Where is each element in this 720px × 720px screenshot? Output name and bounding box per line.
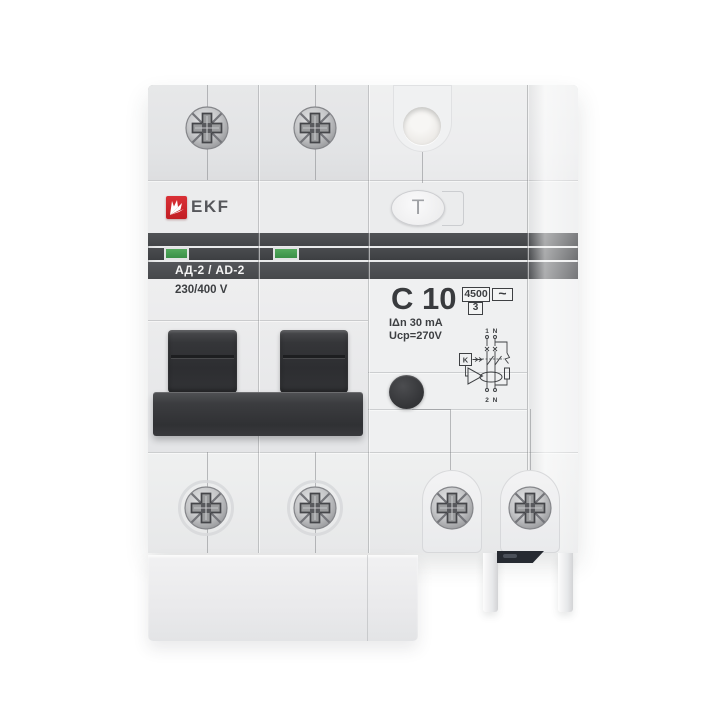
handle-groove bbox=[171, 355, 234, 358]
indicator-window-green bbox=[275, 249, 297, 258]
lower-front-face bbox=[148, 555, 418, 641]
indicator-window-green bbox=[166, 249, 187, 258]
breaking-capacity-box: 4500 bbox=[462, 287, 490, 302]
terminal-screw-icon bbox=[291, 484, 339, 532]
current-rating: C 10 bbox=[391, 281, 456, 317]
lower-face-seam bbox=[367, 555, 368, 641]
t-button-recess bbox=[442, 191, 464, 226]
dark-band-upper bbox=[148, 233, 578, 246]
toggle-handle-left bbox=[168, 330, 237, 393]
energy-class-box: 3 bbox=[468, 302, 483, 315]
trip-voltage-rating: Ucp=270V bbox=[389, 330, 442, 342]
seam-top bbox=[148, 180, 578, 181]
test-button-label: T bbox=[412, 196, 425, 219]
residual-current-rating: IΔn 30 mA bbox=[389, 317, 443, 329]
series-label: АД-2 / AD-2 bbox=[175, 263, 245, 277]
handle-groove bbox=[283, 355, 345, 358]
diagram-terminal-1: 1 bbox=[485, 328, 489, 335]
wire-slot-line bbox=[412, 409, 450, 410]
terminal-screw-icon bbox=[506, 484, 554, 532]
toggle-handle-right bbox=[280, 330, 348, 393]
terminal-screw-icon bbox=[291, 104, 339, 152]
handle-tie-bar bbox=[153, 392, 363, 436]
brand-name: EKF bbox=[191, 197, 230, 217]
wiring-diagram: 1 N 2 N K bbox=[455, 324, 517, 406]
product-photo: АД-2 / AD-2 EKF bbox=[0, 0, 720, 720]
test-oval-button: T bbox=[391, 190, 445, 226]
diagram-terminal-2: 2 bbox=[485, 397, 489, 404]
din-rail-clip bbox=[497, 551, 544, 563]
indicator-band bbox=[148, 248, 578, 260]
diagram-terminal-n-bottom: N bbox=[493, 397, 498, 404]
diagram-relay-label: K bbox=[463, 356, 469, 365]
seam-bottom bbox=[148, 452, 578, 453]
diagram-terminal-n-top: N bbox=[493, 328, 498, 335]
terminal-screw-icon bbox=[183, 104, 231, 152]
current-type-box: ~ bbox=[492, 288, 513, 301]
brand-logo-icon bbox=[166, 196, 187, 219]
breaker-body: АД-2 / AD-2 EKF bbox=[148, 85, 578, 553]
mounting-leg bbox=[483, 553, 498, 612]
terminal-screw-icon bbox=[428, 484, 476, 532]
module-seam bbox=[368, 85, 369, 553]
mounting-leg bbox=[558, 553, 573, 612]
module-seam bbox=[258, 85, 259, 553]
series-band: АД-2 / AD-2 bbox=[148, 262, 578, 279]
terminal-screw-icon bbox=[182, 484, 230, 532]
rays-icon bbox=[166, 196, 187, 219]
voltage-rating: 230/400 V bbox=[175, 284, 227, 296]
mounting-hole bbox=[403, 107, 441, 145]
test-round-button bbox=[389, 375, 424, 409]
din-clip-slot bbox=[503, 554, 517, 558]
